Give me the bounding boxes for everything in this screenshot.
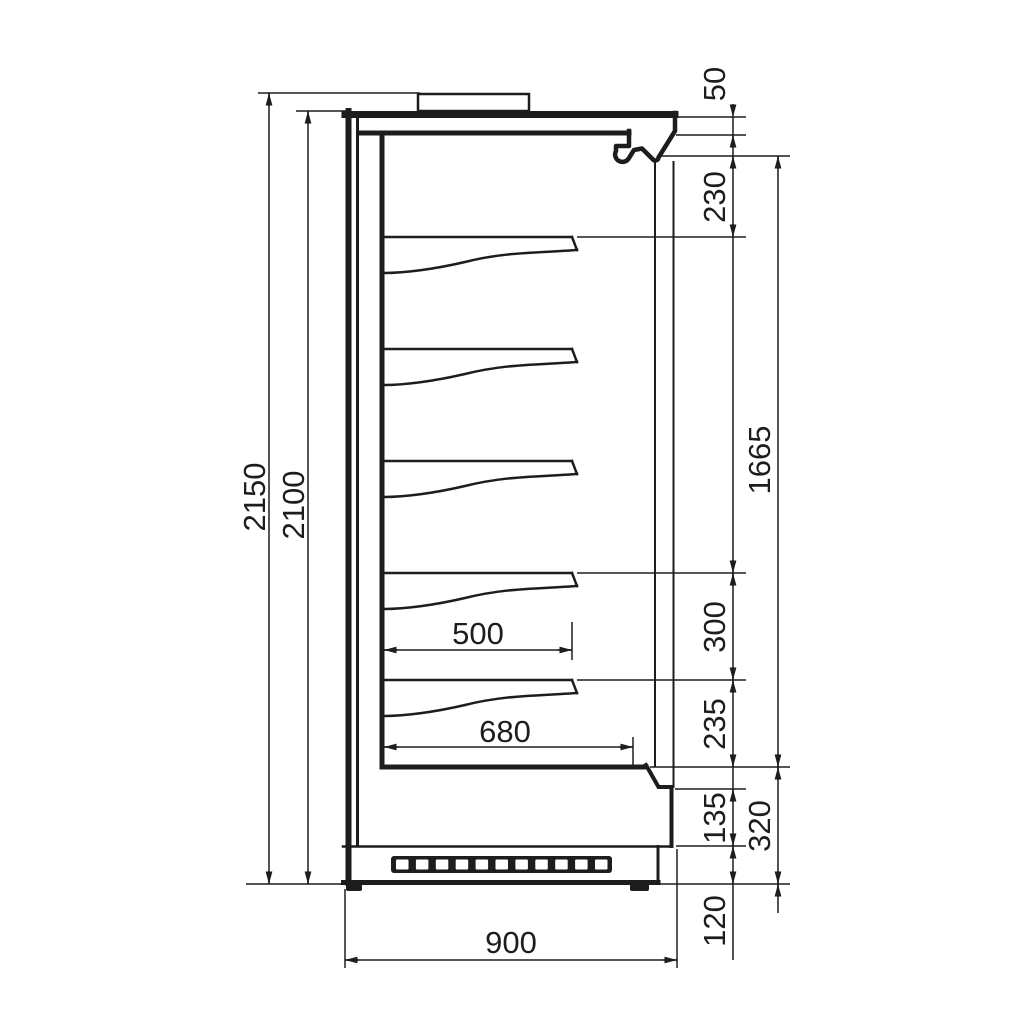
shelf-2 (384, 349, 577, 385)
top-vent-box (418, 94, 529, 111)
dim-display-opening-height: 1665 (742, 426, 777, 495)
shelf-4 (384, 573, 577, 609)
dim-canopy-to-first-shelf: 230 (697, 171, 732, 223)
cabinet-structure (343, 94, 675, 891)
technical-drawing-page: 2150 2100 50 230 1665 300 235 135 320 12… (0, 0, 1024, 1024)
dimension-annotations: 2150 2100 50 230 1665 300 235 135 320 12… (237, 67, 790, 968)
multideck-cabinet-side-view: 2150 2100 50 230 1665 300 235 135 320 12… (0, 0, 1024, 1024)
dim-cabinet-height: 2100 (276, 471, 311, 540)
dim-deck-depth: 680 (479, 714, 531, 749)
dimension-labels: 2150 2100 50 230 1665 300 235 135 320 12… (237, 67, 777, 960)
ventilation-grille (391, 856, 612, 873)
front-bumper-step (646, 765, 672, 846)
dim-plinth-height: 120 (697, 895, 732, 947)
dim-shelf-to-deck: 235 (697, 698, 732, 750)
canopy-front-hook (615, 113, 675, 162)
dim-shelf-depth: 500 (452, 616, 504, 651)
shelf-5 (384, 680, 577, 716)
dim-overall-depth: 900 (485, 925, 537, 960)
shelf-3 (384, 461, 577, 497)
shelf-1 (384, 237, 577, 273)
dim-overall-height: 2150 (237, 463, 272, 532)
dim-top-panel: 50 (697, 67, 732, 101)
dim-front-panel-height: 135 (697, 792, 732, 844)
dim-deck-to-floor: 320 (742, 800, 777, 852)
dim-shelf-pitch: 300 (697, 601, 732, 653)
